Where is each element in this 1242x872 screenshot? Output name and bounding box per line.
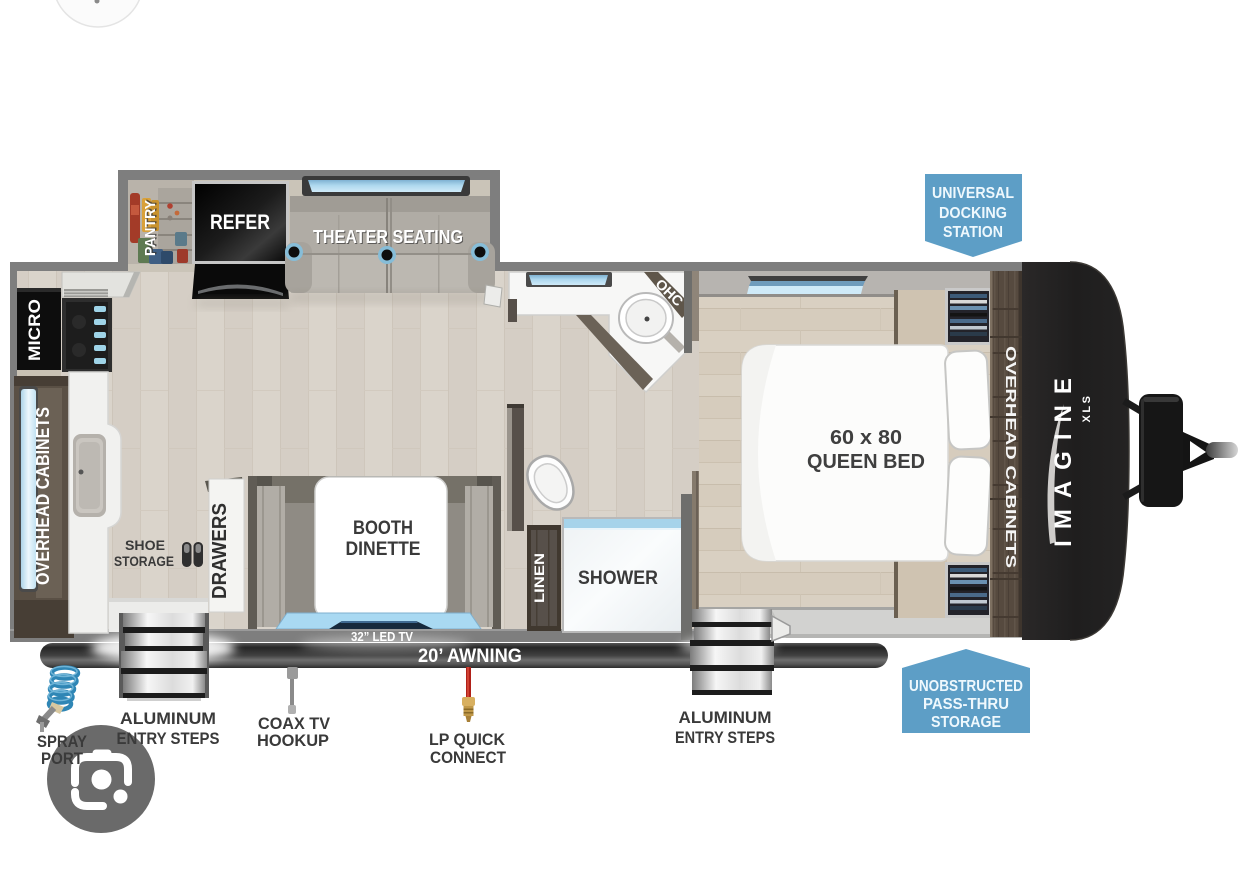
svg-text:CONNECT: CONNECT [430, 748, 507, 767]
svg-text:UNOBSTRUCTED: UNOBSTRUCTED [909, 678, 1023, 695]
svg-text:MICRO: MICRO [25, 299, 44, 361]
svg-text:UNIVERSAL: UNIVERSAL [932, 185, 1014, 202]
svg-text:THEATER SEATING: THEATER SEATING [313, 227, 463, 247]
svg-text:PASS-THRU: PASS-THRU [923, 696, 1009, 713]
svg-text:XLS: XLS [1081, 394, 1093, 423]
svg-text:SHOE: SHOE [125, 537, 165, 553]
svg-text:IMAGINE: IMAGINE [1050, 367, 1077, 547]
svg-text:20’ AWNING: 20’ AWNING [418, 646, 522, 667]
svg-text:LP QUICK: LP QUICK [429, 730, 506, 749]
svg-text:PANTRY: PANTRY [142, 200, 159, 256]
svg-text:QUEEN BED: QUEEN BED [807, 451, 925, 473]
svg-text:DOCKING: DOCKING [939, 205, 1007, 222]
svg-text:STORAGE: STORAGE [114, 553, 174, 569]
svg-text:BOOTH: BOOTH [353, 518, 413, 539]
svg-text:LINEN: LINEN [531, 553, 547, 603]
svg-text:60 x 80: 60 x 80 [830, 427, 902, 449]
svg-text:DRAWERS: DRAWERS [209, 503, 231, 599]
svg-text:ENTRY STEPS: ENTRY STEPS [675, 728, 775, 747]
svg-text:ALUMINUM: ALUMINUM [679, 708, 772, 727]
svg-text:STORAGE: STORAGE [931, 714, 1001, 731]
svg-text:SHOWER: SHOWER [578, 568, 658, 589]
svg-text:REFER: REFER [210, 211, 270, 234]
svg-text:OVERHEAD CABINETS: OVERHEAD CABINETS [1002, 346, 1019, 568]
svg-text:STATION: STATION [943, 224, 1003, 241]
svg-text:ALUMINUM: ALUMINUM [120, 709, 216, 728]
svg-text:OVERHEAD CABINETS: OVERHEAD CABINETS [33, 407, 53, 585]
svg-text:HOOKUP: HOOKUP [257, 731, 329, 750]
svg-text:PORT: PORT [41, 749, 84, 768]
svg-text:ENTRY STEPS: ENTRY STEPS [117, 729, 220, 748]
svg-text:DINETTE: DINETTE [346, 539, 421, 560]
